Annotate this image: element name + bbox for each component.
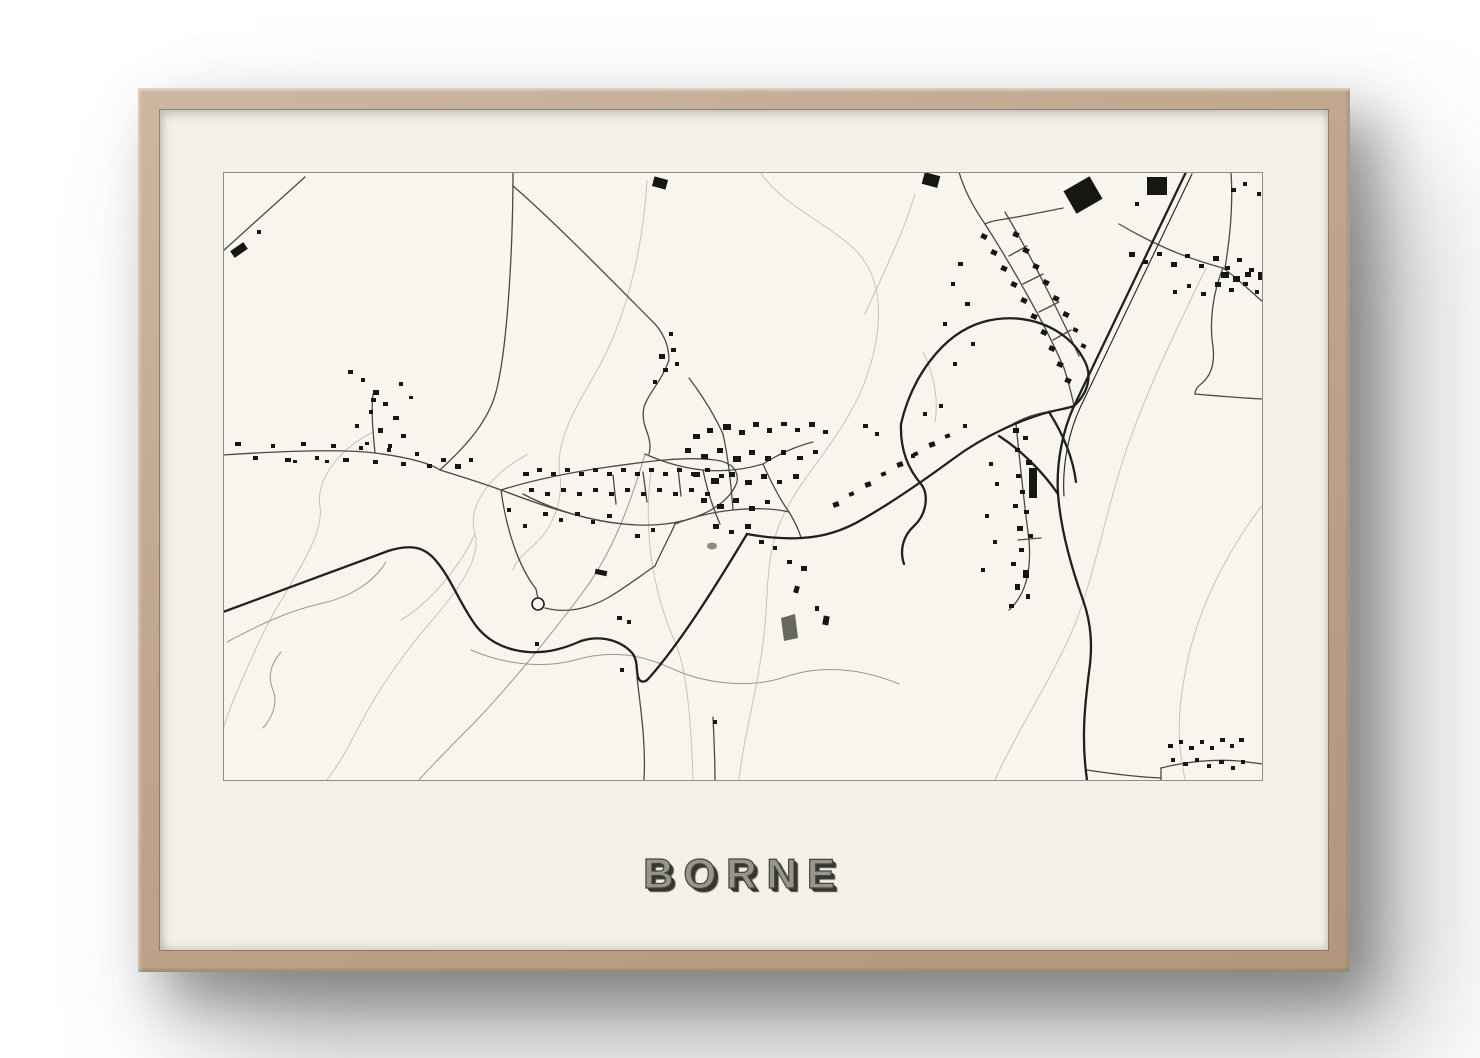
picture-frame: BORNE	[138, 88, 1350, 972]
poster-mat: BORNE	[160, 110, 1328, 950]
poster-title: BORNE	[160, 850, 1328, 898]
map-canvas	[223, 172, 1263, 781]
page-background: { "poster": { "title": "BORNE" }, "water…	[0, 0, 1480, 1058]
map-area	[223, 172, 1263, 781]
watermark-dots: .....................	[608, 1014, 988, 1026]
